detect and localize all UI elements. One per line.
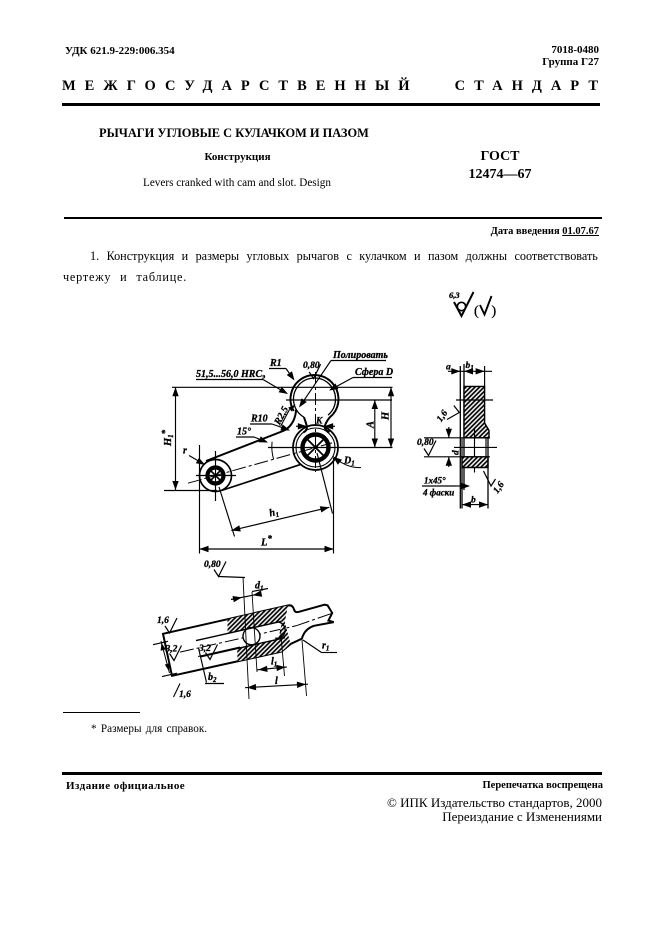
- svg-text:1,6: 1,6: [492, 480, 507, 496]
- svg-text:Полировать: Полировать: [332, 350, 388, 361]
- svg-text:1,6: 1,6: [435, 409, 450, 425]
- svg-text:0,80: 0,80: [204, 560, 221, 570]
- svg-text:3,2: 3,2: [198, 644, 211, 654]
- svg-text:l: l: [275, 676, 278, 687]
- svg-text:0,80: 0,80: [417, 438, 434, 448]
- svg-text:R10: R10: [250, 414, 268, 425]
- svg-text:a: a: [446, 363, 451, 373]
- svg-text:1x45°: 1x45°: [424, 476, 446, 486]
- svg-text:4 фаски: 4 фаски: [422, 488, 454, 498]
- svg-text:H: H: [381, 411, 392, 421]
- svg-text:r: r: [183, 446, 187, 457]
- svg-text:L*: L*: [260, 534, 272, 549]
- svg-text:b1: b1: [466, 361, 474, 372]
- svg-text:l1: l1: [271, 657, 277, 669]
- svg-text:15°: 15°: [237, 427, 251, 438]
- svg-text:H1*: H1*: [160, 429, 175, 447]
- svg-text:d: d: [452, 450, 462, 455]
- svg-text:6,3: 6,3: [449, 290, 460, 300]
- svg-text:K: K: [315, 417, 323, 427]
- svg-text:h1: h1: [268, 507, 280, 521]
- svg-text:A: A: [366, 421, 377, 429]
- svg-text:51,5...56,0 HRCэ: 51,5...56,0 HRCэ: [196, 369, 265, 381]
- svg-text:R1: R1: [269, 358, 282, 369]
- svg-text:1,6: 1,6: [179, 690, 191, 700]
- svg-text:b2: b2: [208, 672, 217, 684]
- svg-text:(: (: [474, 304, 479, 319]
- svg-text:): ): [492, 304, 497, 319]
- svg-text:b: b: [471, 496, 476, 506]
- svg-text:1,6: 1,6: [157, 616, 169, 626]
- svg-text:3,2: 3,2: [165, 645, 178, 655]
- svg-text:Сфера D: Сфера D: [355, 367, 393, 378]
- svg-text:r1: r1: [322, 641, 329, 653]
